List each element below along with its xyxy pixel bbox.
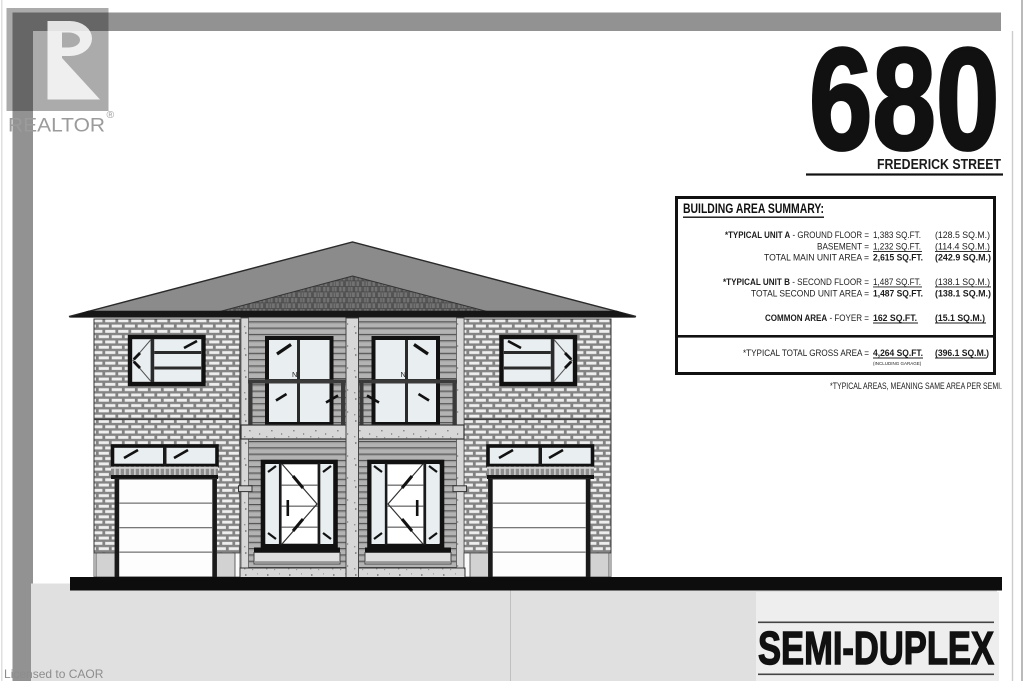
svg-text:*TYPICAL TOTAL GROSS AREA =: *TYPICAL TOTAL GROSS AREA = xyxy=(743,348,869,358)
svg-text:2,615 SQ.FT.: 2,615 SQ.FT. xyxy=(873,253,923,263)
svg-text:1,487 SQ.FT.: 1,487 SQ.FT. xyxy=(873,277,921,287)
svg-text:(114.4 SQ.M.): (114.4 SQ.M.) xyxy=(935,242,990,252)
svg-text:(138.1 SQ.M.): (138.1 SQ.M.) xyxy=(935,289,991,299)
svg-text:Licensed to CAOR: Licensed to CAOR xyxy=(4,667,104,681)
svg-text:FREDERICK STREET: FREDERICK STREET xyxy=(877,157,1001,173)
svg-text:4,264 SQ.FT.: 4,264 SQ.FT. xyxy=(873,348,923,358)
svg-text:BASEMENT =: BASEMENT = xyxy=(817,242,869,252)
svg-text:(128.5 SQ.M.): (128.5 SQ.M.) xyxy=(935,230,990,240)
svg-text:®: ® xyxy=(107,109,115,121)
svg-text:BUILDING AREA SUMMARY:: BUILDING AREA SUMMARY: xyxy=(683,201,824,216)
svg-text:TOTAL MAIN UNIT AREA =: TOTAL MAIN UNIT AREA = xyxy=(764,253,869,263)
svg-text:*TYPICAL UNIT B - SECOND FLOOR: *TYPICAL UNIT B - SECOND FLOOR = xyxy=(723,277,869,287)
svg-text:(396.1 SQ.M.): (396.1 SQ.M.) xyxy=(935,348,989,358)
svg-text:SEMI-DUPLEX: SEMI-DUPLEX xyxy=(758,622,994,674)
svg-text:1,383 SQ.FT.: 1,383 SQ.FT. xyxy=(873,230,921,240)
svg-text:TOTAL SECOND UNIT AREA =: TOTAL SECOND UNIT AREA = xyxy=(751,289,869,299)
svg-text:162 SQ.FT.: 162 SQ.FT. xyxy=(873,313,917,323)
svg-text:(INCLUDING GARAGE): (INCLUDING GARAGE) xyxy=(873,361,922,366)
svg-text:*TYPICAL AREAS, MEANING SAME A: *TYPICAL AREAS, MEANING SAME AREA PER SE… xyxy=(830,381,1002,391)
svg-text:1,487 SQ.FT.: 1,487 SQ.FT. xyxy=(873,289,923,299)
svg-text:(138.1 SQ.M.): (138.1 SQ.M.) xyxy=(935,277,990,287)
svg-text:N: N xyxy=(401,370,406,379)
svg-text:(242.9 SQ.M.): (242.9 SQ.M.) xyxy=(935,253,991,263)
svg-text:(15.1 SQ.M.): (15.1 SQ.M.) xyxy=(935,313,985,323)
svg-text:REALTOR: REALTOR xyxy=(8,115,105,137)
svg-text:COMMON AREA - FOYER =: COMMON AREA - FOYER = xyxy=(765,313,869,323)
svg-text:*TYPICAL UNIT A - GROUND FLOOR: *TYPICAL UNIT A - GROUND FLOOR = xyxy=(725,230,869,240)
svg-text:680: 680 xyxy=(809,18,999,180)
svg-text:N: N xyxy=(292,370,297,379)
svg-text:1,232 SQ.FT.: 1,232 SQ.FT. xyxy=(873,242,921,252)
